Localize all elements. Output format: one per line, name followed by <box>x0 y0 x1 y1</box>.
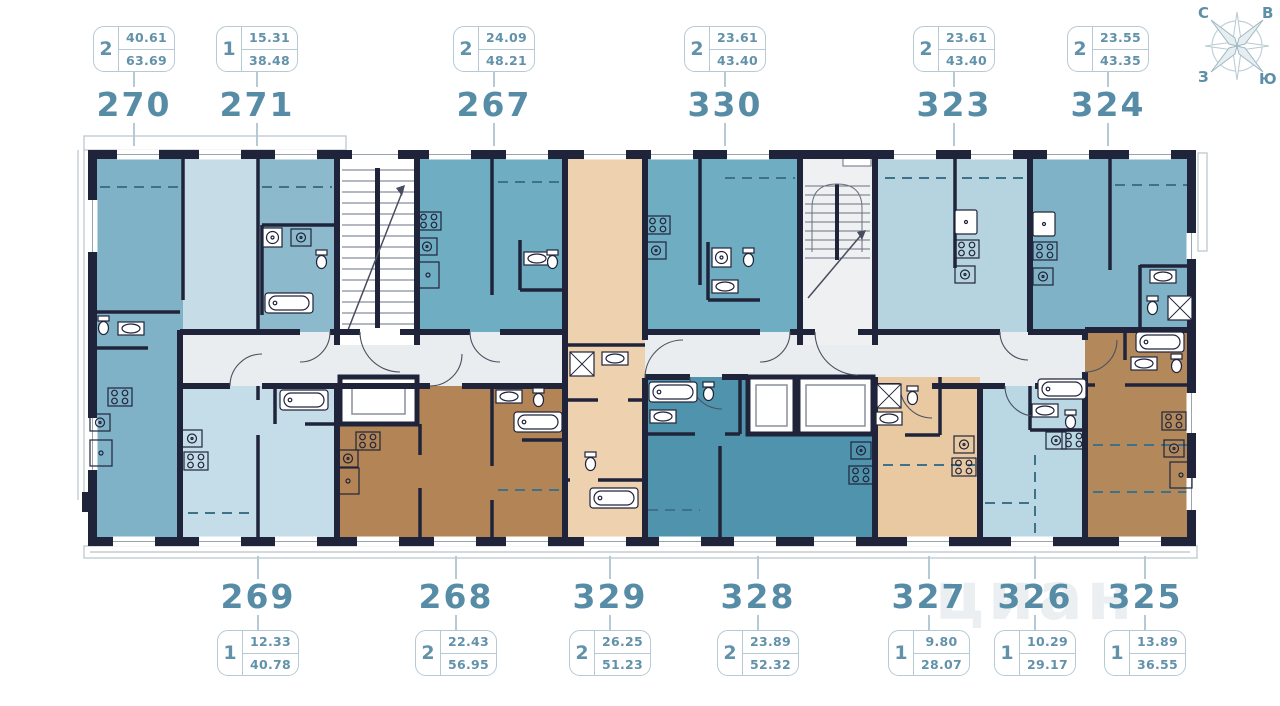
apartment-badge-268[interactable]: 2 22.4356.95 <box>415 630 497 676</box>
apartment-badge-324[interactable]: 2 23.5543.35 <box>1067 26 1149 72</box>
connector <box>455 556 457 579</box>
living-area: 23.61 <box>939 27 994 50</box>
total-area: 38.48 <box>242 50 297 72</box>
rooms-count: 2 <box>454 27 479 71</box>
compass-north: С <box>1198 4 1209 22</box>
rooms-count: 1 <box>995 631 1020 675</box>
connector <box>1144 615 1146 630</box>
connector <box>1034 556 1036 579</box>
apartment-number-323[interactable]: 323 <box>917 87 992 123</box>
total-area: 56.95 <box>441 654 496 676</box>
connector <box>257 615 259 630</box>
apartment-badge-328[interactable]: 2 23.8952.32 <box>717 630 799 676</box>
living-area: 15.31 <box>242 27 297 50</box>
apartment-label-269: 269 1 12.3340.78 <box>210 556 306 676</box>
stairwell-left <box>340 153 414 345</box>
connector <box>609 556 611 579</box>
rooms-count: 1 <box>218 631 243 675</box>
total-area: 63.69 <box>119 50 174 72</box>
living-area: 22.43 <box>441 631 496 654</box>
living-area: 26.25 <box>595 631 650 654</box>
total-area: 28.07 <box>914 654 969 676</box>
apartment-label-323: 2 23.6143.40 323 <box>906 26 1002 146</box>
apartment-number-328[interactable]: 328 <box>721 579 796 615</box>
living-area: 12.33 <box>243 631 298 654</box>
connector <box>1107 123 1109 146</box>
apartment-label-325: 325 1 13.8936.55 <box>1097 556 1193 676</box>
apartment-badge-326[interactable]: 1 10.2929.17 <box>994 630 1076 676</box>
apartment-number-267[interactable]: 267 <box>457 87 532 123</box>
apartment-number-325[interactable]: 325 <box>1108 579 1183 615</box>
apartment-number-269[interactable]: 269 <box>221 579 296 615</box>
connector <box>609 615 611 630</box>
living-area: 10.29 <box>1020 631 1075 654</box>
total-area: 43.40 <box>939 50 994 72</box>
apartment-label-329: 329 2 26.2551.23 <box>562 556 658 676</box>
rooms-count: 2 <box>718 631 743 675</box>
apartment-number-326[interactable]: 326 <box>998 579 1073 615</box>
connector <box>493 123 495 146</box>
apartment-number-330[interactable]: 330 <box>688 87 763 123</box>
rooms-count: 2 <box>1068 27 1093 71</box>
living-area: 40.61 <box>119 27 174 50</box>
apartment-number-327[interactable]: 327 <box>892 579 967 615</box>
apartment-badge-330[interactable]: 2 23.6143.40 <box>684 26 766 72</box>
apartment-label-268: 268 2 22.4356.95 <box>408 556 504 676</box>
rooms-count: 1 <box>889 631 914 675</box>
apartment-label-328: 328 2 23.8952.32 <box>710 556 806 676</box>
total-area: 51.23 <box>595 654 650 676</box>
connector <box>928 556 930 579</box>
living-area: 13.89 <box>1130 631 1185 654</box>
apartment-label-324: 2 23.5543.35 324 <box>1060 26 1156 146</box>
stairwell-right <box>803 152 872 345</box>
apartment-number-329[interactable]: 329 <box>573 579 648 615</box>
rooms-count: 1 <box>217 27 242 71</box>
total-area: 40.78 <box>243 654 298 676</box>
connector <box>256 123 258 146</box>
apartment-badge-323[interactable]: 2 23.6143.40 <box>913 26 995 72</box>
connector <box>257 556 259 579</box>
apartment-badge-270[interactable]: 2 40.6163.69 <box>93 26 175 72</box>
connector <box>1144 556 1146 579</box>
connector <box>133 123 135 146</box>
connector <box>724 123 726 146</box>
living-area: 23.61 <box>710 27 765 50</box>
apartment-number-268[interactable]: 268 <box>419 579 494 615</box>
apartment-label-270: 2 40.6163.69 270 <box>86 26 182 146</box>
compass-west: З <box>1198 68 1209 86</box>
total-area: 43.40 <box>710 50 765 72</box>
apartment-region-329[interactable] <box>565 150 645 546</box>
rooms-count: 1 <box>1105 631 1130 675</box>
apartment-badge-271[interactable]: 1 15.3138.48 <box>216 26 298 72</box>
apartment-number-270[interactable]: 270 <box>97 87 172 123</box>
apartment-label-326: 326 1 10.2929.17 <box>987 556 1083 676</box>
rooms-count: 2 <box>914 27 939 71</box>
apartment-badge-325[interactable]: 1 13.8936.55 <box>1104 630 1186 676</box>
apartment-label-271: 1 15.3138.48 271 <box>209 26 305 146</box>
apartment-region-271[interactable] <box>183 150 258 332</box>
apartment-region-270-kitchen[interactable] <box>88 332 180 546</box>
apartment-region-270[interactable] <box>88 150 183 332</box>
total-area: 36.55 <box>1130 654 1185 676</box>
apartment-badge-267[interactable]: 2 24.0948.21 <box>453 26 535 72</box>
apartment-label-267: 2 24.0948.21 267 <box>446 26 542 146</box>
rooms-count: 2 <box>94 27 119 71</box>
total-area: 29.17 <box>1020 654 1075 676</box>
compass-rose: С В З Ю <box>1196 2 1278 88</box>
living-area: 23.89 <box>743 631 798 654</box>
compass-east: В <box>1262 4 1273 22</box>
connector <box>757 556 759 579</box>
connector <box>953 123 955 146</box>
compass-south: Ю <box>1259 70 1277 88</box>
living-area: 23.55 <box>1093 27 1148 50</box>
apartment-region-323[interactable] <box>875 150 1030 332</box>
total-area: 52.32 <box>743 654 798 676</box>
apartment-label-327: 327 1 9.8028.07 <box>881 556 977 676</box>
apartment-number-271[interactable]: 271 <box>220 87 295 123</box>
total-area: 48.21 <box>479 50 534 72</box>
living-area: 9.80 <box>914 631 969 654</box>
total-area: 43.35 <box>1093 50 1148 72</box>
rooms-count: 2 <box>685 27 710 71</box>
connector <box>1034 615 1036 630</box>
apartment-badge-327[interactable]: 1 9.8028.07 <box>888 630 970 676</box>
rooms-count: 2 <box>570 631 595 675</box>
rooms-count: 2 <box>416 631 441 675</box>
apartment-number-324[interactable]: 324 <box>1071 87 1146 123</box>
apartment-label-330: 2 23.6143.40 330 <box>677 26 773 146</box>
connector <box>928 615 930 630</box>
connector <box>757 615 759 630</box>
connector <box>455 615 457 630</box>
living-area: 24.09 <box>479 27 534 50</box>
apartment-badge-269[interactable]: 1 12.3340.78 <box>217 630 299 676</box>
apartment-badge-329[interactable]: 2 26.2551.23 <box>569 630 651 676</box>
floorplan-page: циан <box>0 0 1280 706</box>
